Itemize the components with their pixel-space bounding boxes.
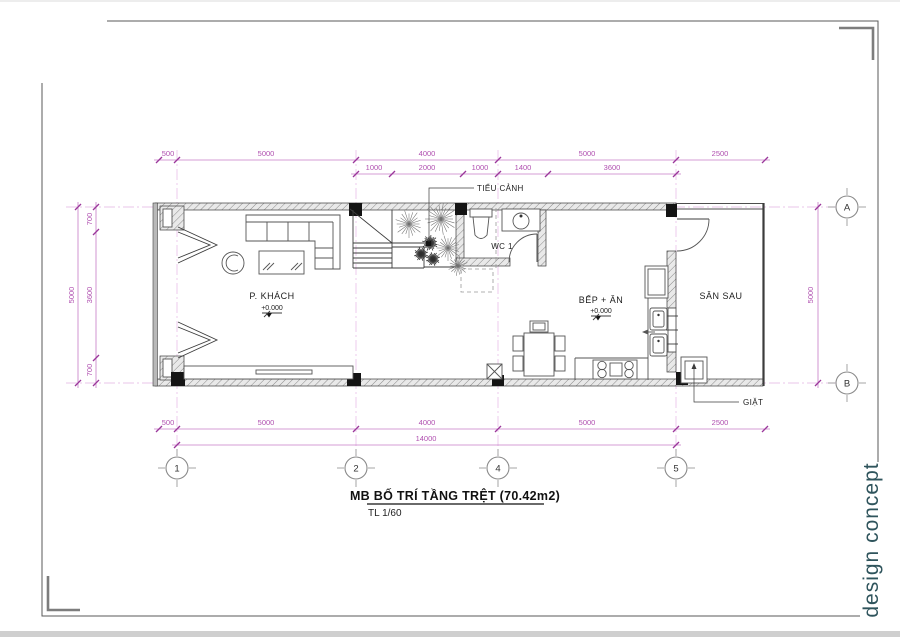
dim-bot-5000b: 5000 (579, 418, 596, 427)
garden-leader (429, 188, 474, 242)
walls (153, 203, 764, 386)
svg-text:B: B (844, 379, 850, 390)
drawing-scale: TL 1/60 (368, 508, 402, 519)
laundry-callout: GIẶT (743, 398, 763, 407)
living-window (184, 366, 353, 379)
garden-callout: TIỂU CẢNH (477, 184, 524, 193)
dimensions-bottom: 500 5000 4000 5000 2500 14000 (154, 418, 770, 448)
grid-bubble-2: 2 (337, 449, 375, 487)
toilet-tank (470, 209, 492, 217)
grid-bubbles-right: A B (828, 188, 866, 402)
fridge (645, 266, 668, 298)
dining-chair-r2 (555, 356, 565, 371)
grid-bubble-1: 1 (158, 449, 196, 487)
wc-fixtures (470, 209, 540, 262)
dimensions-left: 5000 700 3600 700 (67, 202, 99, 388)
grid-axes (66, 150, 838, 456)
wc-faucet (520, 215, 523, 218)
dim-bot-500: 500 (162, 418, 175, 427)
wc-door-swing (509, 234, 537, 262)
title-block: MB BỐ TRÍ TẦNG TRỆT (70.42m2) TL 1/60 (350, 488, 560, 519)
dim-bot-2500: 2500 (712, 418, 729, 427)
dining-chair-l1 (513, 336, 523, 351)
dining-table (524, 333, 554, 376)
back-door-swing (677, 219, 709, 251)
dimensions-right: 5000 (806, 202, 821, 388)
entry-folding-door (178, 227, 217, 358)
coffee-table (259, 251, 304, 274)
dim-left-3600: 3600 (85, 287, 94, 304)
grid-bubble-5: 5 (657, 449, 695, 487)
dim-top-5000b: 5000 (579, 149, 596, 158)
dining-chair-l2 (513, 356, 523, 371)
dim-top-500: 500 (162, 149, 175, 158)
wc-wall-left (456, 210, 464, 262)
grid-bubbles-bottom: 1 2 4 5 (158, 449, 695, 487)
dining-chair-r1 (555, 336, 565, 351)
svg-text:5: 5 (673, 464, 678, 475)
dim-bot-5000a: 5000 (258, 418, 275, 427)
drawing-title: MB BỐ TRÍ TẦNG TRỆT (70.42m2) (350, 488, 560, 503)
dim-total-14000: 14000 (416, 434, 437, 443)
dim-sub-1000a: 1000 (366, 163, 383, 172)
dim-top-2500: 2500 (712, 149, 729, 158)
dim-left-5000: 5000 (67, 287, 76, 304)
living-label: P. KHÁCH (249, 291, 294, 301)
garden-leader-dot (426, 241, 431, 246)
wc-label: WC 1 (491, 242, 513, 251)
living-furniture (222, 215, 340, 274)
grid-bubble-4: 4 (479, 449, 517, 487)
corner-mark-bottom-left (48, 576, 80, 610)
drawing-sheet: 500 5000 4000 5000 2500 1000 2000 1000 1… (0, 0, 900, 637)
svg-text:1: 1 (174, 464, 179, 475)
back-door (677, 219, 709, 251)
dim-sub-3600: 3600 (604, 163, 621, 172)
dim-left-700b: 700 (85, 364, 94, 377)
toilet-bowl (473, 217, 489, 239)
page-edge-bottom (0, 631, 900, 637)
wc-vanity (502, 209, 540, 231)
svg-text:A: A (844, 203, 851, 214)
dim-left-700a: 700 (85, 213, 94, 226)
stair (350, 209, 424, 268)
backyard-label: SÂN SAU (699, 291, 742, 301)
kitchen-label: BẾP + ĂN (579, 295, 624, 305)
dim-bot-4000: 4000 (419, 418, 436, 427)
dimensions-top: 500 5000 4000 5000 2500 1000 2000 1000 1… (154, 149, 770, 177)
corner-mark-top-right (839, 28, 873, 60)
dim-right-5000: 5000 (806, 287, 815, 304)
grid-bubble-A: A (828, 188, 866, 226)
page-edge-top (0, 0, 900, 2)
kitchen-furniture (487, 266, 668, 380)
svg-text:2: 2 (353, 464, 358, 475)
dim-top-4000: 4000 (419, 149, 436, 158)
svg-text:4: 4 (495, 464, 500, 475)
floor-plan-svg: 500 5000 4000 5000 2500 1000 2000 1000 1… (0, 0, 900, 637)
wc-wall-bottom (456, 258, 510, 266)
kitchen-level: +0.000 (590, 308, 612, 315)
dim-sub-1000b: 1000 (472, 163, 489, 172)
sheet-frame (42, 21, 878, 616)
grid-bubble-B: B (828, 364, 866, 402)
dim-top-5000a: 5000 (258, 149, 275, 158)
dim-sub-1400: 1400 (515, 163, 532, 172)
studio-branding: design concept (860, 462, 883, 617)
living-level: +0.000 (261, 305, 283, 312)
dim-sub-2000: 2000 (419, 163, 436, 172)
